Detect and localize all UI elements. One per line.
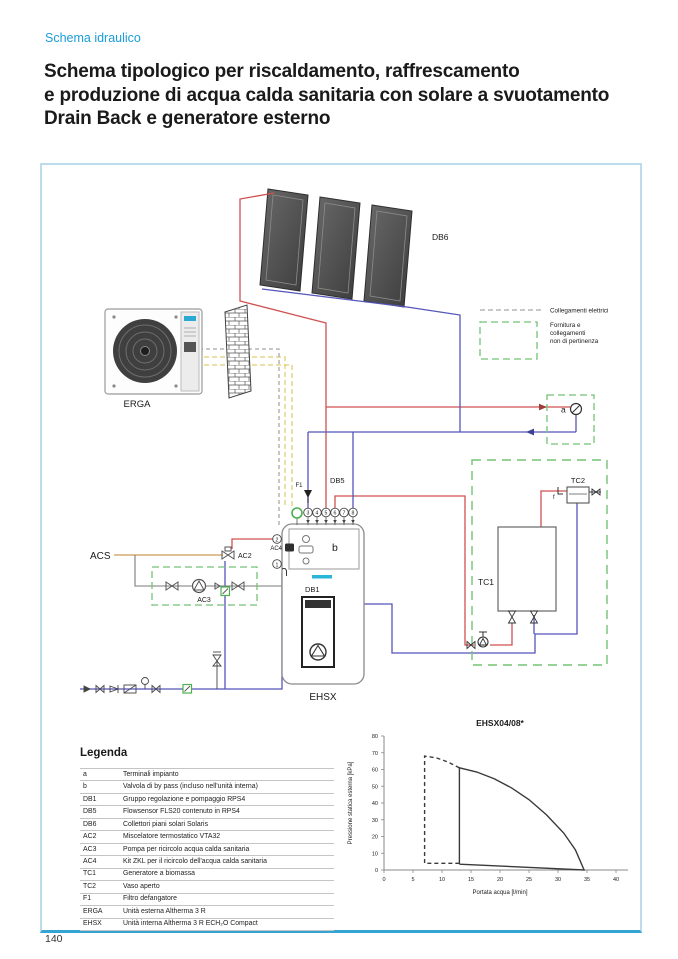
diagram-frame: DB6 <box>40 163 642 933</box>
legend-row: AC2Miscelatore termostatico VTA32 <box>80 830 334 842</box>
cold-inlet-fittings <box>84 652 221 693</box>
tc1-label: TC1 <box>478 577 494 587</box>
port-number: 5 <box>325 511 328 517</box>
chart-series-extended-envelope <box>425 756 460 863</box>
tank-ehsx <box>282 524 364 684</box>
bypass-label: b <box>332 542 338 554</box>
port-1-label: 1 <box>276 562 279 568</box>
x-tick-label: 25 <box>526 877 532 883</box>
legend-row: AC3Pompa per ricircolo acqua calda sanit… <box>80 843 334 855</box>
fan-icon <box>113 319 177 383</box>
legend-row-desc: Unità interna Altherma 3 R ECH₂O Compact <box>123 920 334 928</box>
legend-heading: Legenda <box>80 747 334 759</box>
chart-title: EHSX04/08* <box>476 718 524 728</box>
brick-wall <box>225 305 251 398</box>
erga-label: ERGA <box>124 399 152 410</box>
supply-key-line1: Fornitura e <box>550 322 581 329</box>
legend-row: ERGAUnità esterna Altherma 3 R <box>80 905 334 917</box>
ehsx-label: EHSX <box>309 692 337 703</box>
acs-label: ACS <box>90 551 111 562</box>
diagram-key <box>480 310 542 359</box>
safety-valve-icon <box>213 652 221 689</box>
y-tick-label: 50 <box>372 784 378 790</box>
db6-label: DB6 <box>432 232 449 242</box>
port-number: 8 <box>352 511 355 517</box>
boiler-pump-group-icon <box>467 632 488 649</box>
legend-row: bValvola di by pass (incluso nell'unità … <box>80 780 334 792</box>
legend-row-key: b <box>80 783 123 791</box>
radiator-valve-icon <box>571 404 582 415</box>
supply-key-line3: non di pertinenza <box>550 338 599 345</box>
x-tick-label: 0 <box>382 877 385 883</box>
legend-row-key: AC2 <box>80 833 123 841</box>
boiler-isolation-valves <box>509 611 538 623</box>
tc2-label: TC2 <box>571 476 585 485</box>
recirc-pipe <box>135 555 287 586</box>
legend-row-key: ERGA <box>80 908 123 916</box>
x-tick-label: 20 <box>497 877 503 883</box>
daikin-logo <box>312 575 332 579</box>
legend-row-desc: Collettori piani solari Solaris <box>123 821 334 829</box>
legend-row-desc: Gruppo regolazione e pompaggio RPS4 <box>123 796 334 804</box>
legend-row-desc: Terminali impianto <box>123 771 334 779</box>
chart-xlabel: Portata acqua [l/min] <box>472 890 527 896</box>
x-tick-label: 35 <box>584 877 590 883</box>
pump-icon <box>310 644 326 660</box>
flow-arrow-right <box>539 404 547 411</box>
solar-panel <box>364 205 412 307</box>
tc2-open-vessel <box>558 487 601 503</box>
legend-row: AC4Kit ZKL per il ricircolo dell'acqua c… <box>80 855 334 867</box>
legend-row: DB5Flowsensor FLS20 contenuto in RPS4 <box>80 805 334 817</box>
y-tick-label: 70 <box>372 751 378 757</box>
legend-row-key: AC4 <box>80 858 123 866</box>
db1-label: DB1 <box>305 585 320 594</box>
legend-row-key: F1 <box>80 895 123 903</box>
y-tick-label: 40 <box>372 801 378 807</box>
legend-row-desc: Kit ZKL per il ricircolo dell'acqua cald… <box>123 858 334 866</box>
ac4-label: AC4 <box>270 546 282 552</box>
legend-row-desc: Vaso aperto <box>123 883 334 891</box>
y-tick-label: 20 <box>372 835 378 841</box>
legend-row-desc: Valvola di by pass (incluso nell'unità i… <box>123 783 334 791</box>
port-number: 6 <box>334 511 337 517</box>
legend-row-key: TC1 <box>80 870 123 878</box>
x-tick-label: 10 <box>439 877 445 883</box>
terminal-a-box <box>547 395 594 444</box>
legend-row: EHSXUnità interna Altherma 3 R ECH₂O Com… <box>80 918 334 931</box>
solar-return-pipe <box>262 289 460 432</box>
electrical-key-label: Collegamenti elettrici <box>550 308 608 315</box>
brand-mark <box>184 316 196 321</box>
legend-row: DB1Gruppo regolazione e pompaggio RPS4 <box>80 793 334 805</box>
legend-row: DB6Collettori piani solari Solaris <box>80 818 334 830</box>
legend-row-key: DB1 <box>80 796 123 804</box>
page-number: 140 <box>45 933 63 945</box>
legend-row-key: a <box>80 771 123 779</box>
legend-row: TC2Vaso aperto <box>80 880 334 892</box>
legend-row-key: DB6 <box>80 821 123 829</box>
solar-panel <box>312 197 360 299</box>
ac2-label: AC2 <box>238 553 252 560</box>
page-title: Schema tipologico per riscaldamento, raf… <box>44 60 624 131</box>
pressure-gauge-icon <box>142 678 149 690</box>
cold-water-pipe <box>80 561 282 689</box>
y-tick-label: 60 <box>372 768 378 774</box>
db5-label: DB5 <box>330 476 345 485</box>
flow-arrow-left <box>526 429 534 436</box>
f1-label: F1 <box>295 483 303 489</box>
performance-chart: 051015202530354001020304050607080EHSX04/… <box>342 714 642 904</box>
legend-table: Legenda aTerminali impiantobValvola di b… <box>80 747 334 931</box>
x-tick-label: 40 <box>613 877 619 883</box>
legend-row-desc: Miscelatore termostatico VTA32 <box>123 833 334 841</box>
legend-row: TC1Generatore a biomassa <box>80 868 334 880</box>
safety-port-icon <box>292 508 302 525</box>
terminal-return-pipe <box>308 415 576 432</box>
dhw-hot-pipe <box>232 539 273 549</box>
float-valve-icon <box>589 489 601 495</box>
legend-row-desc: Unità esterna Altherma 3 R <box>123 908 334 916</box>
solar-panels <box>260 189 412 307</box>
legend-row-key: EHSX <box>80 920 123 928</box>
ac3-label: AC3 <box>197 597 211 604</box>
port-2-label: 2 <box>276 537 279 543</box>
out-of-scope-key-box <box>480 322 537 359</box>
port-number: 4 <box>316 511 319 517</box>
vessel-vent-label: f <box>553 495 555 501</box>
x-tick-label: 5 <box>411 877 414 883</box>
y-tick-label: 30 <box>372 818 378 824</box>
legend-row-desc: Pompa per ricircolo acqua calda sanitari… <box>123 846 334 854</box>
legend-row-desc: Generatore a biomassa <box>123 870 334 878</box>
x-tick-label: 30 <box>555 877 561 883</box>
section-eyebrow: Schema idraulico <box>45 31 141 45</box>
legend-row-key: AC3 <box>80 846 123 854</box>
legend-row-desc: Filtro defangatore <box>123 895 334 903</box>
legend-row-key: TC2 <box>80 883 123 891</box>
x-tick-label: 15 <box>468 877 474 883</box>
legend-row: aTerminali impianto <box>80 768 334 780</box>
ac4-kit-icon <box>285 544 294 552</box>
y-tick-label: 0 <box>375 868 378 874</box>
recirc-pump-icon <box>193 580 206 593</box>
legend-row-desc: Flowsensor FLS20 contenuto in RPS4 <box>123 808 334 816</box>
tc1-boiler-box <box>498 527 556 611</box>
flow-arrow-icon <box>84 686 90 692</box>
chart-series-operating-envelope <box>459 768 584 870</box>
legend-row-key: DB5 <box>80 808 123 816</box>
db1-pump-module <box>302 597 334 667</box>
port-number: 3 <box>307 511 310 517</box>
terminal-a-label: a <box>561 405 566 415</box>
legend-row: F1Filtro defangatore <box>80 893 334 905</box>
outdoor-unit-erga <box>105 309 202 394</box>
solar-panel <box>260 189 308 291</box>
chart-svg: 051015202530354001020304050607080EHSX04/… <box>342 714 642 904</box>
y-tick-label: 10 <box>372 851 378 857</box>
legend-rows: aTerminali impiantobValvola di by pass (… <box>80 768 334 931</box>
y-tick-label: 80 <box>372 734 378 740</box>
chart-ylabel: Pressione statica esterna [kPa] <box>348 761 354 844</box>
filter-f1-icon <box>304 490 312 503</box>
tank-top-ports: 345678 <box>304 508 358 525</box>
manual-page: Schema idraulico Schema tipologico per r… <box>0 0 678 959</box>
port-number: 7 <box>343 511 346 517</box>
supply-key-line2: collegamenti <box>550 330 585 337</box>
